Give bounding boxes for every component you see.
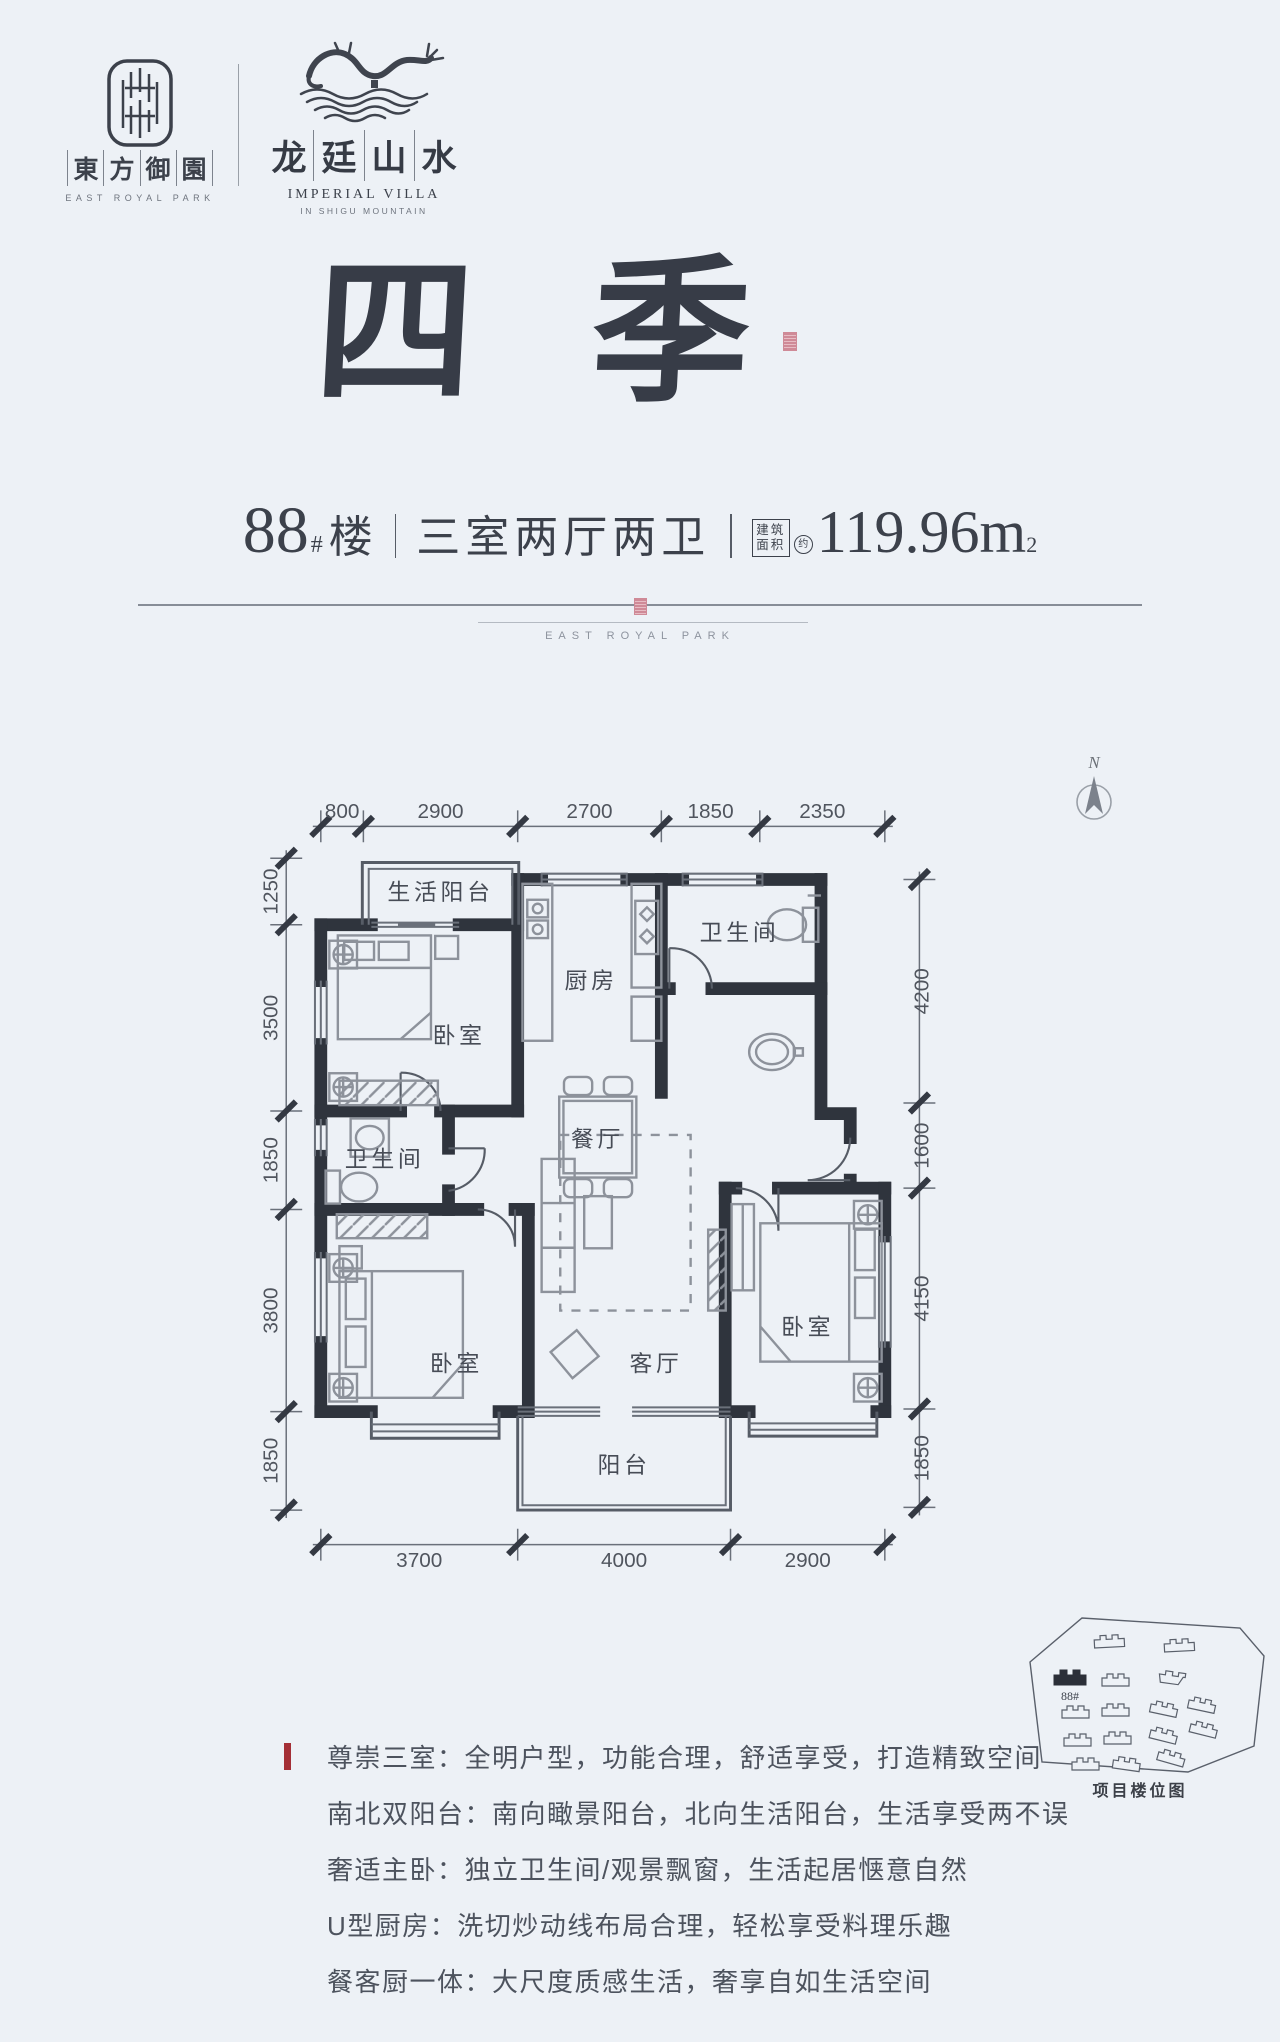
bay-windows [371, 1412, 876, 1439]
brand-right-char: 水 [414, 130, 464, 181]
label-bedroom-se: 卧室 [781, 1314, 834, 1340]
area-label-box: 建筑 面积 [752, 519, 790, 557]
brand-header: 東方御園 EAST ROYAL PARK 龙廷山水 IMPERIAL VILLA… [52, 36, 492, 216]
dim-top-1: 2900 [417, 800, 463, 823]
brand-right: 龙廷山水 IMPERIAL VILLA IN SHIGU MOUNTAIN [249, 36, 479, 216]
brand-right-en1: IMPERIAL VILLA [288, 187, 441, 203]
divider-subline [478, 622, 808, 623]
brand-right-cn: 龙廷山水 [264, 130, 463, 181]
dim-left-2: 1850 [260, 1137, 283, 1183]
dim-top-4: 2350 [799, 800, 845, 823]
dim-bottom-1: 4000 [601, 1549, 647, 1572]
dim-right-3: 1850 [910, 1435, 933, 1481]
brand-left-cn: 東方御園 [67, 150, 212, 186]
hash-mark: # [311, 532, 323, 559]
brand-left-char: 方 [103, 150, 139, 186]
brand-left-en: EAST ROYAL PARK [65, 193, 214, 203]
dim-left-0: 1250 [260, 868, 283, 914]
feature-item: 南北双阳台：南向瞰景阳台，北向生活阳台，生活享受两不误 [327, 1794, 1087, 1850]
feature-list: 尊崇三室：全明户型，功能合理，舒适享受，打造精致空间 南北双阳台：南向瞰景阳台，… [327, 1738, 1087, 2018]
area-label-line1: 建筑 [753, 523, 789, 538]
area-value: 119.96m [817, 502, 1026, 562]
site-plan-caption: 项目楼位图 [1092, 1781, 1187, 1800]
page-title: 四季 [0, 238, 1280, 428]
label-kitchen: 厨房 [565, 968, 618, 994]
label-balcony-south: 阳台 [598, 1452, 651, 1478]
approx-mark: 约 [794, 535, 813, 554]
brand-left-char: 御 [140, 150, 176, 186]
feature-accent-bar [284, 1743, 291, 1770]
brand-right-en2: IN SHIGU MOUNTAIN [300, 206, 427, 216]
dim-right-1: 1600 [910, 1123, 933, 1169]
dim-right-0: 4200 [910, 968, 933, 1014]
area-superscript: 2 [1026, 532, 1037, 558]
north-arrow-icon: N [1062, 750, 1126, 836]
dim-left-4: 1850 [260, 1438, 283, 1484]
site-highlight-label: 88# [1061, 1689, 1079, 1703]
feature-item: U型厨房：洗切炒动线布局合理，轻松享受料理乐趣 [327, 1906, 1087, 1962]
label-bath-left: 卫生间 [345, 1146, 425, 1172]
dim-top-2: 2700 [566, 800, 612, 823]
dim-bottom-2: 2900 [785, 1549, 831, 1572]
brand-left: 東方御園 EAST ROYAL PARK [52, 36, 228, 216]
site-highlight-building [1054, 1670, 1086, 1685]
room-layout: 三室两厅两卫 [416, 501, 710, 565]
dim-bottom-0: 3700 [396, 1549, 442, 1572]
spec-separator [730, 514, 732, 558]
feature-item: 尊崇三室：全明户型，功能合理，舒适享受，打造精致空间 [327, 1738, 1087, 1794]
divider-seal-icon [634, 598, 647, 615]
east-royal-park-seal-icon [101, 58, 179, 150]
divider-caption: EAST ROYAL PARK [0, 630, 1280, 642]
feature-item: 餐客厨一体：大尺度质感生活，奢享自如生活空间 [327, 1962, 1087, 2018]
brand-left-char: 園 [176, 150, 213, 186]
label-bedroom-nw: 卧室 [433, 1022, 486, 1048]
logo-divider [238, 64, 239, 186]
label-dining: 餐厅 [571, 1126, 624, 1152]
label-bedroom-sw: 卧室 [430, 1351, 483, 1377]
dim-top-0: 800 [325, 800, 360, 823]
area-label-line2: 面积 [753, 538, 789, 553]
brand-right-char: 龙 [264, 130, 313, 181]
spec-separator [395, 514, 397, 558]
dim-right-2: 4150 [910, 1275, 933, 1321]
label-living: 客厅 [629, 1351, 682, 1377]
brand-left-char: 東 [67, 150, 103, 186]
dim-left-3: 3800 [260, 1287, 283, 1333]
dim-left-1: 3500 [260, 995, 283, 1041]
feature-item: 奢适主卧：独立卫生间/观景飘窗，生活起居惬意自然 [327, 1850, 1087, 1906]
north-label: N [1087, 753, 1101, 772]
brand-right-char: 廷 [313, 130, 363, 181]
dragon-icon [279, 36, 449, 128]
unit-spec-line: 88#楼 三室两厅两卫 建筑 面积 约 119.96m2 [0, 498, 1280, 565]
building-unit: 楼 [329, 501, 375, 565]
label-life-balcony: 生活阳台 [387, 879, 493, 905]
brand-right-char: 山 [364, 130, 414, 181]
label-bath-top: 卫生间 [700, 920, 780, 946]
dim-top-3: 1850 [687, 800, 733, 823]
title-seal-stamp-icon [783, 332, 797, 351]
section-divider: EAST ROYAL PARK [0, 598, 1280, 658]
building-number: 88 [243, 498, 309, 564]
floor-plan: 800 2900 2700 1850 2350 1250 3500 1850 3… [241, 789, 954, 1582]
